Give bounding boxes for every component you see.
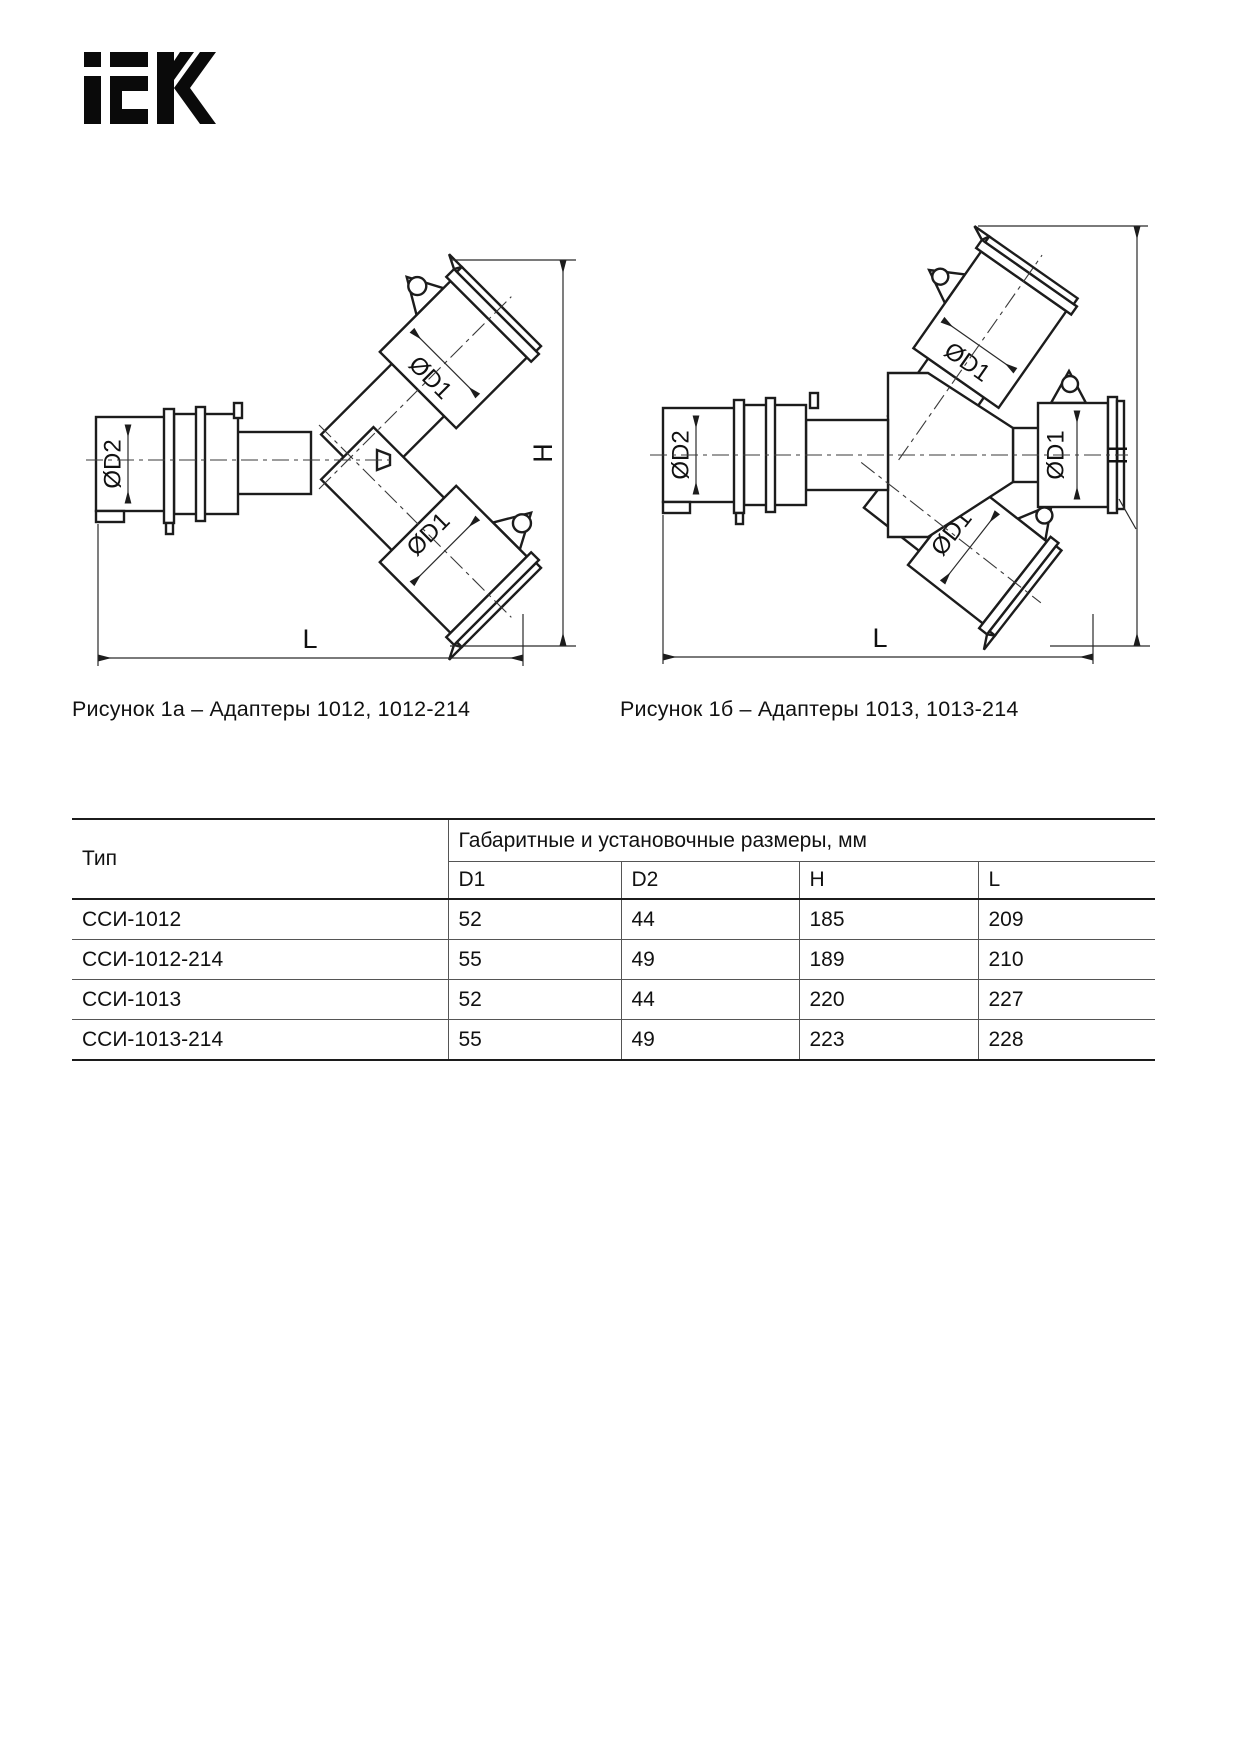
- cell-d2: 49: [621, 940, 799, 980]
- header-h: H: [799, 862, 978, 900]
- dim-label-d2: ØD2: [99, 439, 126, 488]
- socket-upper: ØD1: [285, 244, 544, 503]
- figure-1a-caption: Рисунок 1а – Адаптеры 1012, 1012-214: [72, 697, 470, 722]
- cell-l: 209: [978, 899, 1155, 940]
- datasheet-page: iEK: [0, 0, 1240, 1750]
- cell-h: 223: [799, 1020, 978, 1061]
- cell-type: ССИ-1013: [72, 980, 448, 1020]
- header-dimensions-group: Габаритные и установочные размеры, мм: [448, 819, 1155, 862]
- figure-1b-caption: Рисунок 1б – Адаптеры 1013, 1013-214: [620, 697, 1019, 722]
- cell-h: 189: [799, 940, 978, 980]
- table-row: ССИ-1013 52 44 220 227: [72, 980, 1155, 1020]
- figure-1b-drawing: ØD1 ØD1 ØD1: [588, 212, 1153, 667]
- table-row: ССИ-1013-214 55 49 223 228: [72, 1020, 1155, 1061]
- header-type: Тип: [72, 819, 448, 899]
- header-d1: D1: [448, 862, 621, 900]
- dim-label-l: L: [302, 624, 317, 654]
- cell-d1: 55: [448, 1020, 621, 1061]
- dimensions-table: Тип Габаритные и установочные размеры, м…: [72, 818, 1155, 1061]
- cell-d1: 52: [448, 899, 621, 940]
- table-row: ССИ-1012-214 55 49 189 210: [72, 940, 1155, 980]
- cell-type: ССИ-1012-214: [72, 940, 448, 980]
- cell-d2: 44: [621, 899, 799, 940]
- cell-type: ССИ-1012: [72, 899, 448, 940]
- figure-1a-drawing: ØD1 ØD1 ØD2: [78, 242, 583, 672]
- cell-l: 228: [978, 1020, 1155, 1061]
- cell-d2: 49: [621, 1020, 799, 1061]
- dim-label-h: H: [528, 443, 558, 463]
- cell-d1: 55: [448, 940, 621, 980]
- iek-logo: iEK: [84, 52, 216, 128]
- plug-assembly: [663, 393, 888, 524]
- dim-label-l: L: [872, 623, 887, 653]
- cell-h: 185: [799, 899, 978, 940]
- table-header-row-1: Тип Габаритные и установочные размеры, м…: [72, 819, 1155, 862]
- cell-h: 220: [799, 980, 978, 1020]
- table-row: ССИ-1012 52 44 185 209: [72, 899, 1155, 940]
- cell-l: 210: [978, 940, 1155, 980]
- cell-l: 227: [978, 980, 1155, 1020]
- header-l: L: [978, 862, 1155, 900]
- cell-d2: 44: [621, 980, 799, 1020]
- cell-d1: 52: [448, 980, 621, 1020]
- cell-type: ССИ-1013-214: [72, 1020, 448, 1061]
- header-d2: D2: [621, 862, 799, 900]
